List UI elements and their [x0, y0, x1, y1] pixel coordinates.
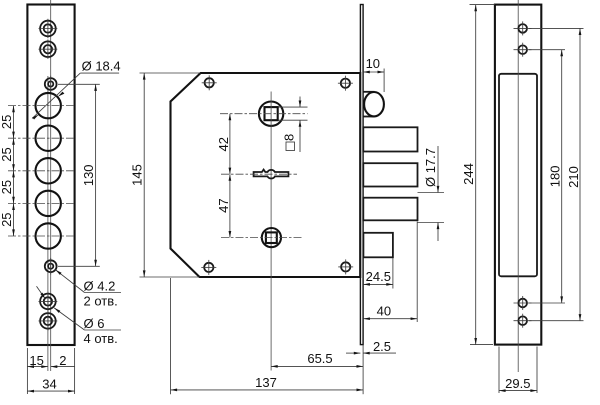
svg-text:130: 130 — [81, 164, 96, 186]
svg-text:24.5: 24.5 — [366, 269, 391, 284]
svg-text:145: 145 — [130, 164, 145, 186]
svg-text:4 отв.: 4 отв. — [84, 331, 118, 346]
svg-text:8: 8 — [282, 134, 297, 141]
svg-text:47: 47 — [216, 198, 231, 212]
svg-text:137: 137 — [255, 375, 277, 390]
svg-text:Ø 17.7: Ø 17.7 — [423, 148, 438, 187]
svg-text:Ø 18.4: Ø 18.4 — [82, 59, 121, 74]
svg-text:34: 34 — [42, 376, 56, 391]
svg-text:180: 180 — [547, 166, 562, 188]
svg-text:2 отв.: 2 отв. — [84, 294, 118, 309]
svg-text:25: 25 — [0, 212, 14, 226]
svg-text:25: 25 — [0, 115, 14, 129]
svg-text:244: 244 — [461, 163, 476, 185]
svg-text:210: 210 — [566, 166, 581, 188]
svg-text:15: 15 — [29, 353, 43, 368]
svg-text:42: 42 — [216, 137, 231, 151]
svg-text:25: 25 — [0, 180, 14, 194]
svg-text:Ø 6: Ø 6 — [84, 316, 105, 331]
svg-text:29.5: 29.5 — [505, 376, 530, 391]
svg-text:2: 2 — [59, 353, 66, 368]
svg-text:Ø 4.2: Ø 4.2 — [84, 278, 116, 293]
svg-text:10: 10 — [366, 56, 380, 71]
svg-text:65.5: 65.5 — [307, 351, 332, 366]
svg-text:2.5: 2.5 — [373, 339, 391, 354]
svg-text:25: 25 — [0, 147, 14, 161]
svg-text:40: 40 — [377, 304, 391, 319]
